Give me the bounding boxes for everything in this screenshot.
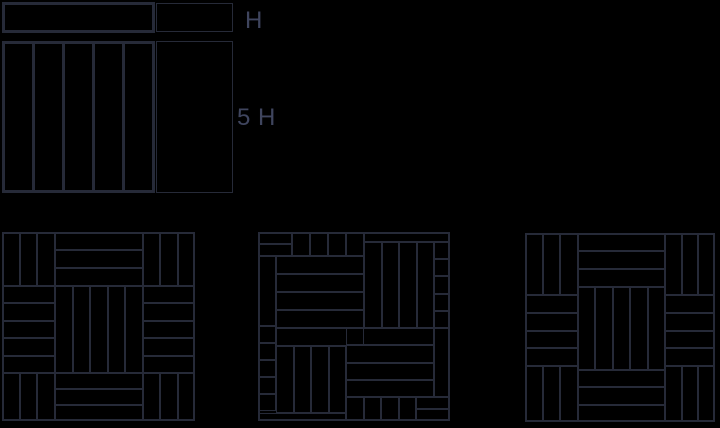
pattern2-col-left-strip bbox=[259, 359, 275, 376]
pattern2-block-br-strip bbox=[347, 379, 433, 396]
pattern1-cell-ml-strip bbox=[3, 355, 54, 372]
pattern2-block-tr bbox=[364, 242, 434, 328]
gauge-rect-5h bbox=[156, 41, 233, 193]
pattern2-col-right-strip bbox=[435, 275, 449, 292]
pattern3-cell-cc-strip bbox=[594, 288, 611, 369]
pattern2-block-tl-strip bbox=[277, 257, 363, 273]
pattern2-band-bl-strip bbox=[259, 414, 345, 420]
pattern3-cell-bl-strip bbox=[542, 367, 560, 421]
gauge-rect-5h-strip bbox=[157, 42, 232, 192]
pattern1-cell-tl bbox=[2, 232, 55, 286]
pattern2-block-tl-strip bbox=[277, 273, 363, 291]
pattern3-cell-mr-strip bbox=[666, 296, 714, 312]
pattern1-cell-bc-strip bbox=[56, 388, 142, 404]
pattern2-block-br bbox=[346, 328, 434, 397]
pattern2-col-right-strip bbox=[435, 310, 449, 327]
pattern2-corner-br-strip bbox=[417, 398, 449, 408]
pattern2-corner-br-strip bbox=[417, 408, 449, 420]
square-of-5-planks bbox=[2, 41, 155, 193]
pattern1-cell-bl bbox=[2, 373, 55, 421]
pattern2-top-planks-strip bbox=[293, 233, 309, 255]
pattern2-corner-tl-strip bbox=[259, 233, 291, 243]
pattern3-cell-cc bbox=[578, 287, 665, 370]
pattern1-cell-tr-strip bbox=[177, 233, 194, 285]
square-side-label: 5 H bbox=[237, 106, 276, 130]
pattern1-cell-mr-strip bbox=[144, 287, 194, 302]
gauge-rect-h bbox=[156, 3, 233, 32]
pattern3-cell-br-strip bbox=[697, 367, 714, 421]
square-of-5-planks-strip bbox=[92, 44, 122, 190]
pattern3-cell-bc-strip bbox=[579, 371, 664, 386]
pattern1-cell-mr-strip bbox=[144, 302, 194, 319]
pattern3-cell-br-strip bbox=[681, 367, 698, 421]
pattern1-cell-tr-strip bbox=[144, 233, 159, 285]
pattern2-col-right-strip bbox=[435, 258, 449, 275]
pattern2-band-tr-strip bbox=[365, 233, 449, 241]
pattern2-block-tl-strip bbox=[277, 291, 363, 309]
pattern2-block-bl-strip bbox=[277, 347, 293, 412]
pattern2-block-tr-strip bbox=[381, 243, 399, 327]
pattern2-block-tr-strip bbox=[416, 243, 434, 327]
pattern2-corner-br bbox=[416, 397, 450, 421]
pattern3-cell-cc-strip bbox=[579, 288, 594, 369]
pattern3-cell-mr-strip bbox=[666, 312, 714, 330]
plank-h-by-5h-strip bbox=[5, 5, 152, 30]
pattern1-cell-cc-strip bbox=[72, 287, 90, 372]
pattern3-cell-tc bbox=[578, 233, 665, 287]
pattern1-cell-tl-strip bbox=[36, 233, 54, 285]
pattern1-cell-mr-strip bbox=[144, 355, 194, 372]
pattern1-cell-br-strip bbox=[159, 374, 176, 420]
pattern3-cell-tc-strip bbox=[579, 234, 664, 250]
pattern1-cell-cc bbox=[55, 286, 143, 373]
pattern2-bottom-planks-strip bbox=[363, 398, 381, 420]
pattern2-band-tr bbox=[364, 232, 450, 242]
pattern3-cell-ml-strip bbox=[526, 296, 577, 312]
pattern2-corner-tl bbox=[258, 232, 292, 256]
pattern2-block-tl-strip bbox=[277, 309, 363, 327]
pattern1-cell-cc-strip bbox=[56, 287, 72, 372]
pattern1-cell-ml-strip bbox=[3, 287, 54, 302]
square-of-5-planks-strip bbox=[32, 44, 62, 190]
pattern3-cell-ml bbox=[525, 295, 578, 366]
pattern3-cell-tl-strip bbox=[542, 234, 560, 294]
pattern3-cell-mr bbox=[665, 295, 715, 366]
pattern3-cell-tr-strip bbox=[681, 234, 698, 294]
pattern1-cell-cc-strip bbox=[89, 287, 107, 372]
plank-height-label: H bbox=[245, 9, 263, 33]
pattern2-col-left-strip bbox=[259, 327, 275, 342]
pattern2-col-right-strip bbox=[435, 293, 449, 310]
pattern2-block-bl-strip bbox=[328, 347, 346, 412]
pattern1-cell-tl-strip bbox=[3, 233, 19, 285]
pattern3-cell-tr-strip bbox=[697, 234, 714, 294]
pattern2-plank-left-strip bbox=[259, 257, 275, 325]
pattern1-cell-tr bbox=[143, 232, 195, 286]
pattern1-cell-bc bbox=[55, 373, 143, 421]
pattern2-block-bl-strip bbox=[310, 347, 328, 412]
pattern3-cell-br bbox=[665, 366, 715, 422]
pattern1-cell-bl-strip bbox=[36, 374, 54, 420]
pattern3-cell-tr bbox=[665, 233, 715, 295]
pattern3-cell-ml-strip bbox=[526, 347, 577, 365]
gauge-rect-h-strip bbox=[157, 4, 232, 31]
pattern2-top-planks-strip bbox=[327, 233, 345, 255]
pattern1-cell-tc bbox=[55, 232, 143, 286]
pattern2-block-tr-strip bbox=[398, 243, 416, 327]
pattern2-block-br-strip bbox=[347, 329, 433, 344]
pattern3-cell-bc bbox=[578, 370, 665, 422]
pattern1-cell-mr bbox=[143, 286, 195, 373]
pattern3-cell-bl-strip bbox=[526, 367, 542, 421]
pattern1-cell-tl-strip bbox=[19, 233, 37, 285]
pattern3-cell-bc-strip bbox=[579, 386, 664, 403]
pattern3-cell-mr-strip bbox=[666, 330, 714, 348]
pattern2-block-bl-strip bbox=[293, 347, 311, 412]
pattern2-block-br-strip bbox=[347, 344, 433, 361]
square-of-5-planks-strip bbox=[122, 44, 152, 190]
pattern2-block-tr-strip bbox=[365, 243, 381, 327]
pattern2-plank-right bbox=[434, 328, 450, 397]
pattern2-bottom-planks bbox=[346, 397, 416, 421]
pattern2-col-right bbox=[434, 242, 450, 328]
square-of-5-planks-strip bbox=[62, 44, 92, 190]
pattern1-cell-br-strip bbox=[144, 374, 159, 420]
pattern1-cell-bc-strip bbox=[56, 404, 142, 420]
pattern1-cell-bl-strip bbox=[19, 374, 37, 420]
pattern2-block-bl bbox=[276, 346, 346, 413]
pattern2-top-planks-strip bbox=[345, 233, 363, 255]
pattern3-cell-tl bbox=[525, 233, 578, 295]
pattern1-cell-ml-strip bbox=[3, 320, 54, 337]
pattern2-plank-right-strip bbox=[435, 329, 449, 396]
pattern1-cell-tc-strip bbox=[56, 249, 142, 267]
pattern3-cell-cc-strip bbox=[612, 288, 629, 369]
pattern2-block-br-strip bbox=[347, 362, 433, 379]
pattern3-cell-cc-strip bbox=[647, 288, 664, 369]
pattern2-col-left-strip bbox=[259, 393, 275, 410]
pattern3-cell-br-strip bbox=[666, 367, 681, 421]
pattern3-cell-ml-strip bbox=[526, 330, 577, 348]
pattern2-top-planks bbox=[292, 232, 364, 256]
pattern1-cell-cc-strip bbox=[107, 287, 125, 372]
pattern3-cell-tr-strip bbox=[666, 234, 681, 294]
pattern3-cell-mr-strip bbox=[666, 347, 714, 365]
plank-h-by-5h bbox=[2, 2, 155, 33]
pattern1-cell-mr-strip bbox=[144, 337, 194, 354]
pattern3-cell-ml-strip bbox=[526, 312, 577, 330]
pattern1-cell-ml bbox=[2, 286, 55, 373]
pattern3-cell-tc-strip bbox=[579, 250, 664, 268]
pattern1-cell-mr-strip bbox=[144, 320, 194, 337]
pattern2-corner-tl-strip bbox=[259, 243, 291, 255]
pattern2-col-left-strip bbox=[259, 376, 275, 393]
pattern1-cell-ml-strip bbox=[3, 337, 54, 354]
pattern1-cell-tc-strip bbox=[56, 267, 142, 285]
pattern1-cell-bc-strip bbox=[56, 374, 142, 388]
pattern3-cell-tl-strip bbox=[559, 234, 577, 294]
pattern3-cell-bc-strip bbox=[579, 404, 664, 421]
pattern3-cell-bl bbox=[525, 366, 578, 422]
pattern1-cell-br-strip bbox=[177, 374, 194, 420]
parquet-diagram-canvas: H 5 H bbox=[0, 0, 720, 428]
pattern2-bottom-planks-strip bbox=[347, 398, 363, 420]
pattern1-cell-bl-strip bbox=[3, 374, 19, 420]
pattern2-col-left bbox=[258, 326, 276, 411]
pattern2-col-left-strip bbox=[259, 342, 275, 359]
pattern3-cell-cc-strip bbox=[629, 288, 646, 369]
pattern3-cell-bl-strip bbox=[559, 367, 577, 421]
pattern1-cell-tr-strip bbox=[159, 233, 176, 285]
pattern2-top-planks-strip bbox=[309, 233, 327, 255]
pattern3-cell-tl-strip bbox=[526, 234, 542, 294]
pattern2-col-right-strip bbox=[435, 243, 449, 258]
pattern1-cell-tc-strip bbox=[56, 233, 142, 249]
square-of-5-planks-strip bbox=[5, 44, 32, 190]
pattern2-bottom-planks-strip bbox=[398, 398, 416, 420]
pattern1-cell-ml-strip bbox=[3, 302, 54, 319]
pattern2-bottom-planks-strip bbox=[380, 398, 398, 420]
pattern2-band-bl bbox=[258, 413, 346, 421]
pattern3-cell-tc-strip bbox=[579, 268, 664, 286]
pattern2-plank-left bbox=[258, 256, 276, 326]
pattern1-cell-br bbox=[143, 373, 195, 421]
pattern1-cell-cc-strip bbox=[124, 287, 142, 372]
